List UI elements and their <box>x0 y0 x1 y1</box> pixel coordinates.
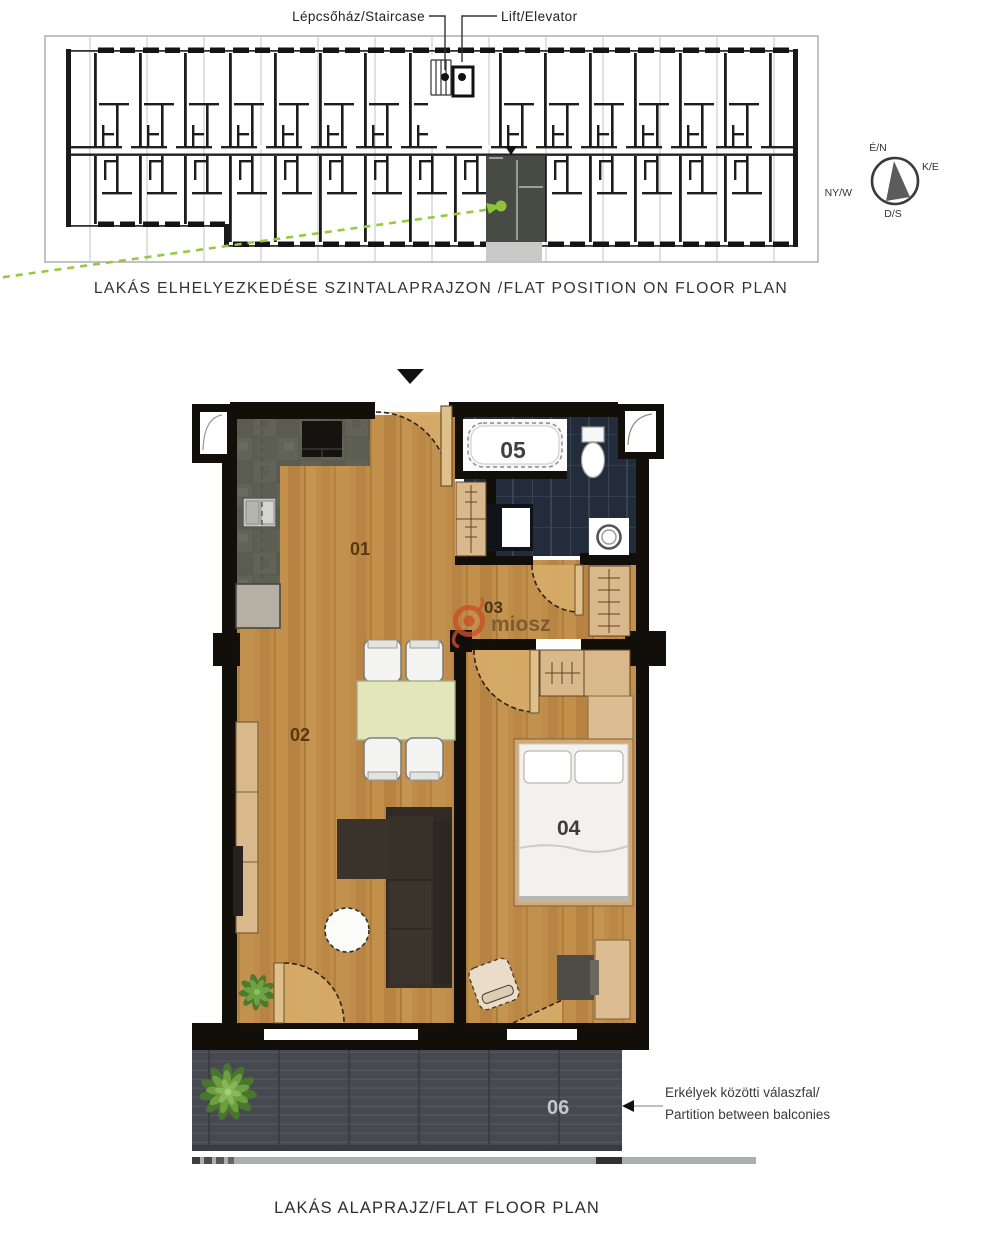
svg-text:É/N: É/N <box>869 141 887 154</box>
svg-text:06: 06 <box>547 1097 569 1119</box>
svg-text:Erkélyek közötti válaszfal/: Erkélyek közötti válaszfal/ <box>665 1085 820 1100</box>
svg-text:Lift/Elevator: Lift/Elevator <box>501 9 578 24</box>
svg-text:K/E: K/E <box>922 161 939 173</box>
svg-text:04: 04 <box>557 817 581 840</box>
svg-text:05: 05 <box>500 437 526 463</box>
svg-text:Partition between balconies: Partition between balconies <box>665 1107 830 1122</box>
svg-text:NY/W: NY/W <box>825 187 853 199</box>
svg-text:LAKÁS ELHELYEZKEDÉSE SZINTALAP: LAKÁS ELHELYEZKEDÉSE SZINTALAPRAJZON /FL… <box>94 278 788 297</box>
svg-text:D/S: D/S <box>884 208 902 220</box>
svg-text:Lépcsőház/Staircase: Lépcsőház/Staircase <box>292 9 425 24</box>
svg-text:01: 01 <box>350 539 370 559</box>
svg-text:LAKÁS ALAPRAJZ/FLAT FLOOR PLAN: LAKÁS ALAPRAJZ/FLAT FLOOR PLAN <box>274 1198 600 1217</box>
svg-text:02: 02 <box>290 725 310 745</box>
svg-text:miosz: miosz <box>491 613 551 636</box>
